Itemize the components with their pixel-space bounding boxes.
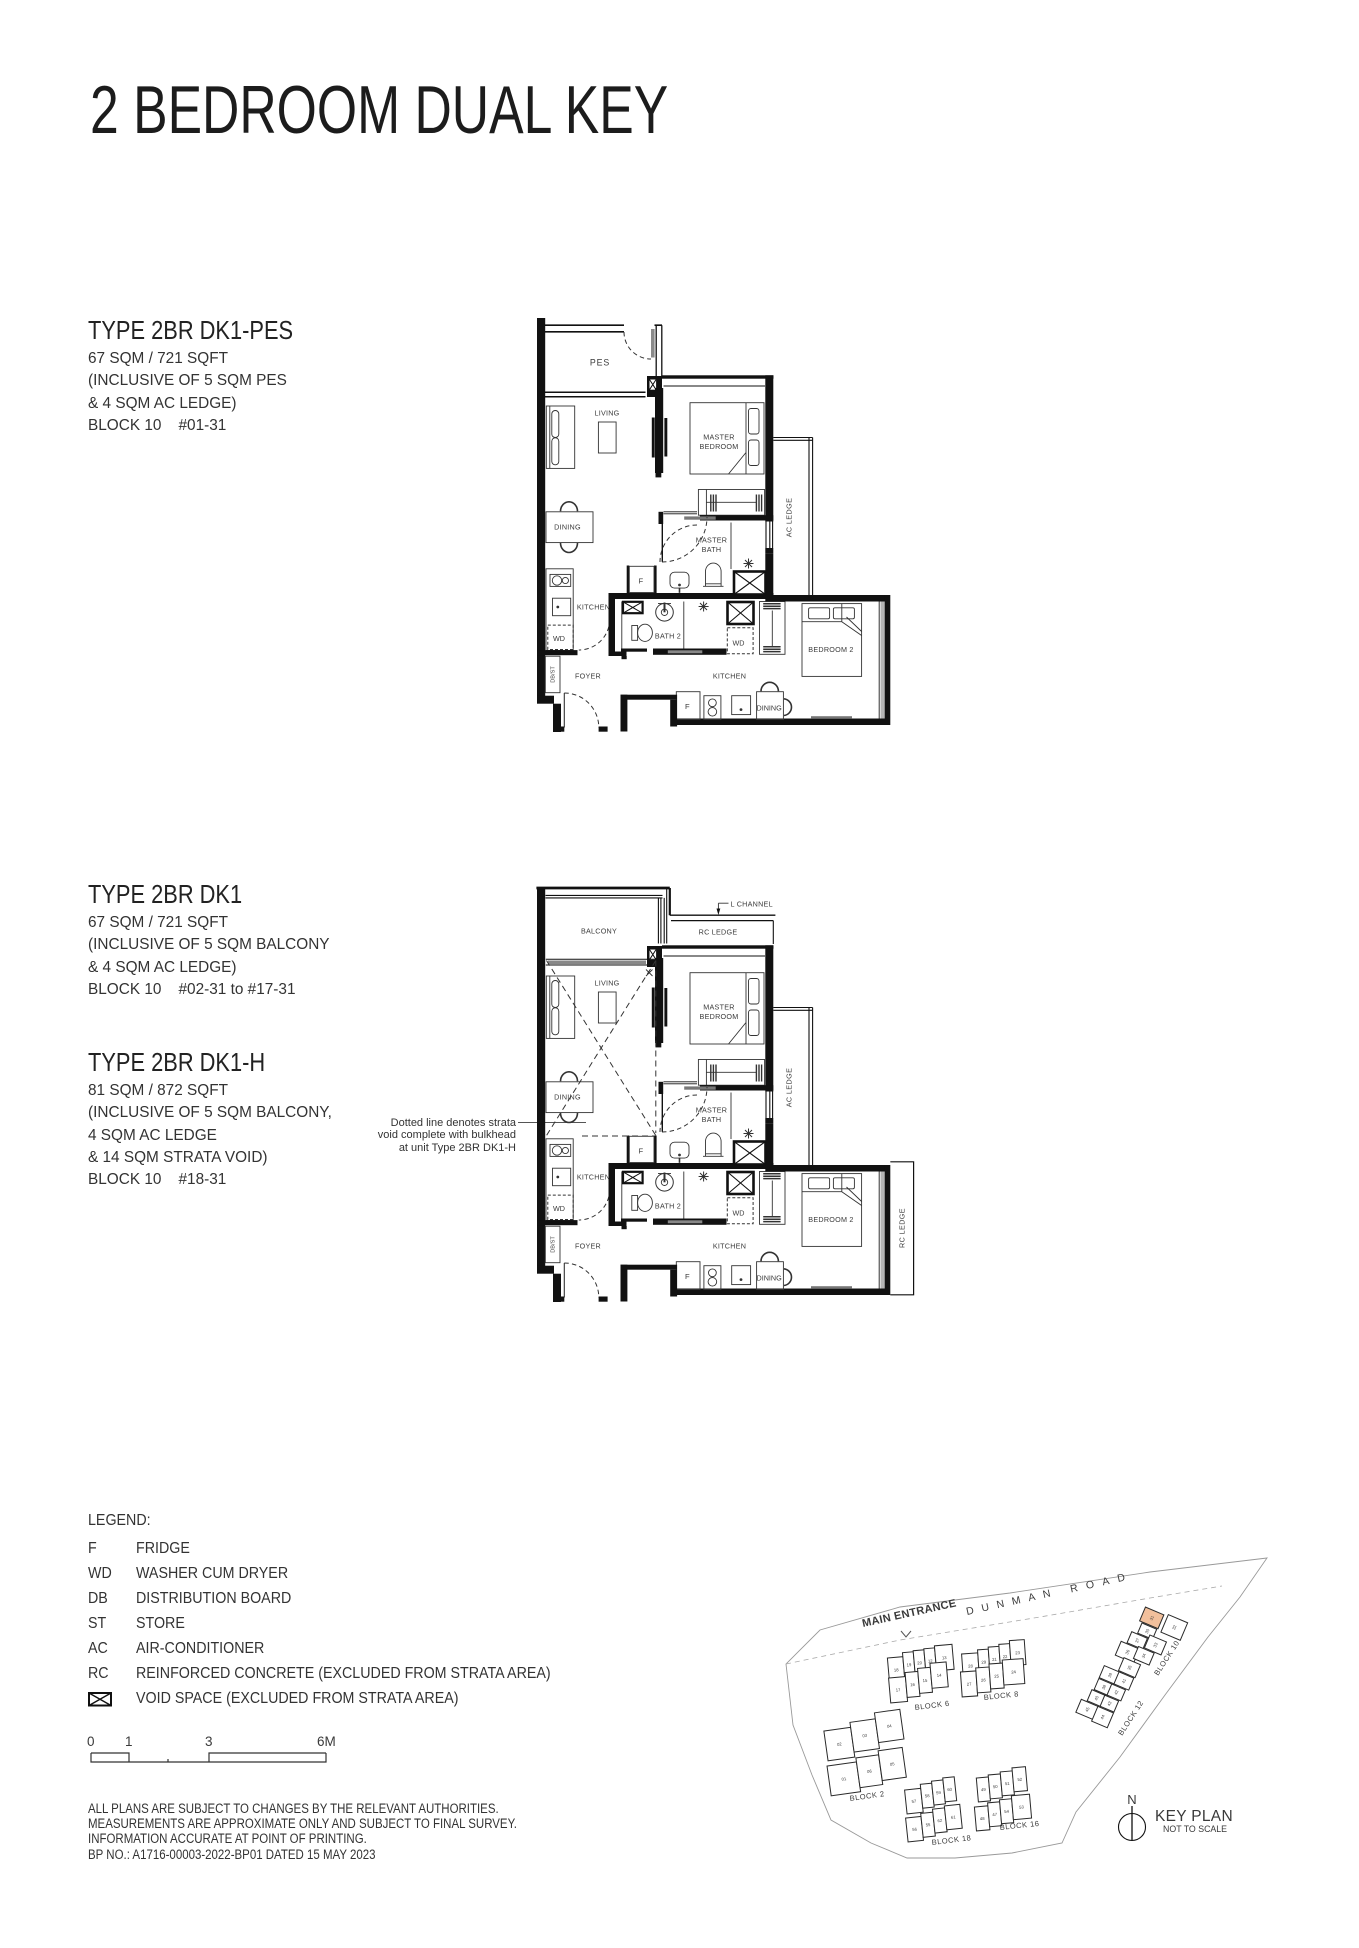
svg-text:BATH: BATH	[702, 545, 722, 554]
svg-text:BATH 2: BATH 2	[655, 632, 681, 641]
svg-text:RC LEDGE: RC LEDGE	[898, 1208, 907, 1248]
svg-text:L CHANNEL: L CHANNEL	[731, 900, 773, 909]
svg-text:3: 3	[205, 1734, 213, 1749]
svg-text:FOYER: FOYER	[575, 672, 601, 681]
svg-text:KITCHEN: KITCHEN	[713, 672, 746, 681]
svg-text:MASTER: MASTER	[703, 433, 734, 442]
svg-text:WD: WD	[553, 634, 565, 643]
svg-text:AC LEDGE: AC LEDGE	[785, 498, 794, 538]
svg-text:ROAD: ROAD	[1069, 1570, 1134, 1596]
svg-text:KITCHEN: KITCHEN	[577, 603, 610, 612]
svg-text:0: 0	[87, 1734, 95, 1749]
svg-text:BEDROOM: BEDROOM	[700, 442, 739, 451]
svg-text:LIVING: LIVING	[594, 409, 619, 418]
svg-text:DINING: DINING	[757, 704, 783, 713]
svg-text:PES: PES	[590, 358, 610, 368]
svg-text:BEDROOM 2: BEDROOM 2	[808, 645, 853, 654]
svg-text:N: N	[1127, 1792, 1136, 1807]
svg-text:BLOCK 12: BLOCK 12	[1116, 1699, 1145, 1737]
svg-text:6M: 6M	[317, 1734, 336, 1749]
svg-text:F: F	[685, 702, 690, 711]
svg-text:WD: WD	[733, 639, 745, 648]
svg-text:F: F	[639, 577, 644, 586]
svg-text:BLOCK 6: BLOCK 6	[914, 1699, 950, 1712]
svg-text:BALCONY: BALCONY	[581, 927, 617, 936]
svg-text:DUNMAN: DUNMAN	[965, 1586, 1059, 1618]
svg-text:RC LEDGE: RC LEDGE	[699, 928, 738, 937]
svg-text:KEY PLAN: KEY PLAN	[1155, 1808, 1233, 1825]
svg-text:NOT TO SCALE: NOT TO SCALE	[1163, 1824, 1227, 1834]
svg-text:DINING: DINING	[554, 523, 581, 532]
svg-text:MASTER: MASTER	[696, 536, 727, 545]
svg-text:DB/ST: DB/ST	[551, 666, 557, 683]
svg-text:BLOCK 18: BLOCK 18	[931, 1833, 972, 1847]
svg-text:1: 1	[125, 1734, 133, 1749]
